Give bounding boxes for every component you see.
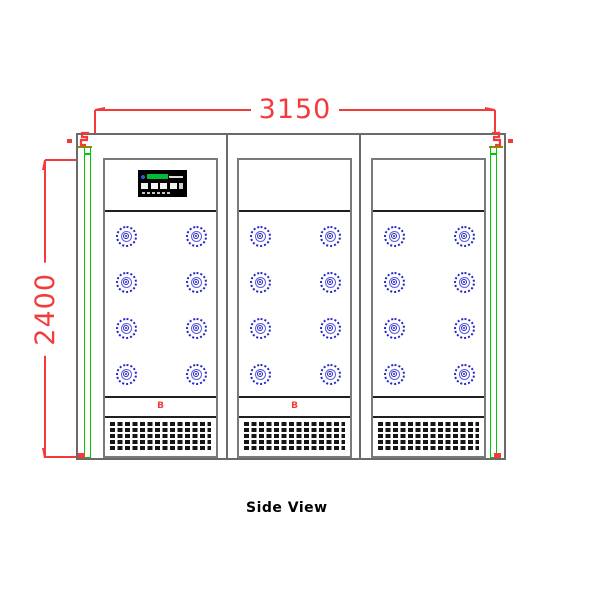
display-status-bar: [147, 174, 168, 179]
view-title: Side View: [246, 500, 328, 516]
panel-separator-line: [105, 396, 216, 398]
nozzle-area: [105, 212, 216, 396]
panel-b-label: B: [239, 399, 350, 413]
air-nozzle-icon: [186, 318, 207, 339]
height-dimension-label: 2400: [31, 160, 59, 458]
air-nozzle-icon: [250, 364, 271, 385]
drawing-canvas: 3150 2400 B B: [0, 0, 600, 600]
air-nozzle-icon: [186, 364, 207, 385]
air-nozzle-icon: [384, 318, 405, 339]
air-nozzle-icon: [454, 226, 475, 247]
panel-separator-line: [239, 396, 350, 398]
control-panel-display: [138, 170, 187, 197]
air-nozzle-icon: [186, 272, 207, 293]
power-led-icon: [141, 175, 145, 179]
right-foot-marker: [494, 453, 501, 458]
display-buttons: [141, 183, 183, 189]
air-return-grille: [110, 422, 211, 452]
panel-divider-line: [359, 133, 361, 460]
air-nozzle-icon: [320, 226, 341, 247]
air-nozzle-icon: [384, 226, 405, 247]
panel-separator-line: [105, 416, 216, 418]
right-marker-dot: [508, 139, 513, 143]
air-nozzle-icon: [186, 226, 207, 247]
air-nozzle-icon: [250, 226, 271, 247]
air-nozzle-icon: [116, 364, 137, 385]
left-foot-marker: [78, 453, 85, 458]
air-nozzle-icon: [320, 318, 341, 339]
air-nozzle-icon: [320, 364, 341, 385]
left-hinge-pin-icon: [78, 146, 92, 148]
right-hinge-pin-icon: [489, 146, 503, 148]
panel-b-label: B: [105, 399, 216, 413]
nozzle-area: [373, 212, 484, 396]
panel-middle: B: [237, 158, 352, 458]
display-readout-line: [169, 176, 183, 178]
panel-right: [371, 158, 486, 458]
left-gasket-strip: [84, 146, 91, 458]
panel-separator-line: [239, 416, 350, 418]
air-return-grille: [378, 422, 479, 452]
air-return-grille: [244, 422, 345, 452]
gasket-cap: [490, 153, 497, 155]
width-dimension-label: 3150: [95, 96, 495, 123]
width-dimension-value: 3150: [251, 94, 340, 125]
air-nozzle-icon: [384, 364, 405, 385]
display-dashes: [142, 192, 170, 194]
air-nozzle-icon: [454, 318, 475, 339]
panel-left: B: [103, 158, 218, 458]
air-nozzle-icon: [250, 318, 271, 339]
panel-separator-line: [373, 416, 484, 418]
air-nozzle-icon: [116, 318, 137, 339]
air-nozzle-icon: [116, 272, 137, 293]
left-marker-dot: [67, 139, 72, 143]
air-nozzle-icon: [384, 272, 405, 293]
air-nozzle-icon: [454, 364, 475, 385]
air-nozzle-icon: [320, 272, 341, 293]
panel-separator-line: [373, 396, 484, 398]
panel-divider-line: [226, 133, 228, 460]
air-nozzle-icon: [116, 226, 137, 247]
nozzle-area: [239, 212, 350, 396]
gasket-cap: [84, 153, 91, 155]
height-dimension-value: 2400: [32, 263, 59, 356]
air-nozzle-icon: [454, 272, 475, 293]
right-gasket-strip: [490, 146, 497, 458]
air-nozzle-icon: [250, 272, 271, 293]
